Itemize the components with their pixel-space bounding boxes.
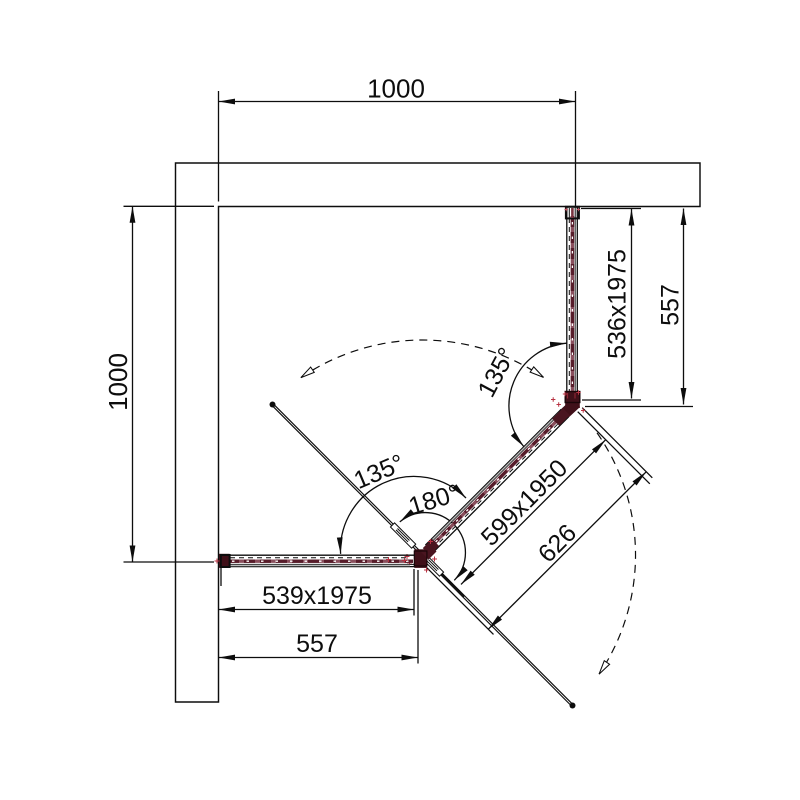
svg-text:539x1975: 539x1975 (262, 582, 372, 610)
svg-text:1000: 1000 (103, 353, 133, 411)
svg-text:557: 557 (296, 630, 338, 658)
svg-text:536x1975: 536x1975 (604, 249, 632, 359)
svg-text:557: 557 (657, 284, 685, 326)
svg-text:1000: 1000 (367, 74, 425, 104)
